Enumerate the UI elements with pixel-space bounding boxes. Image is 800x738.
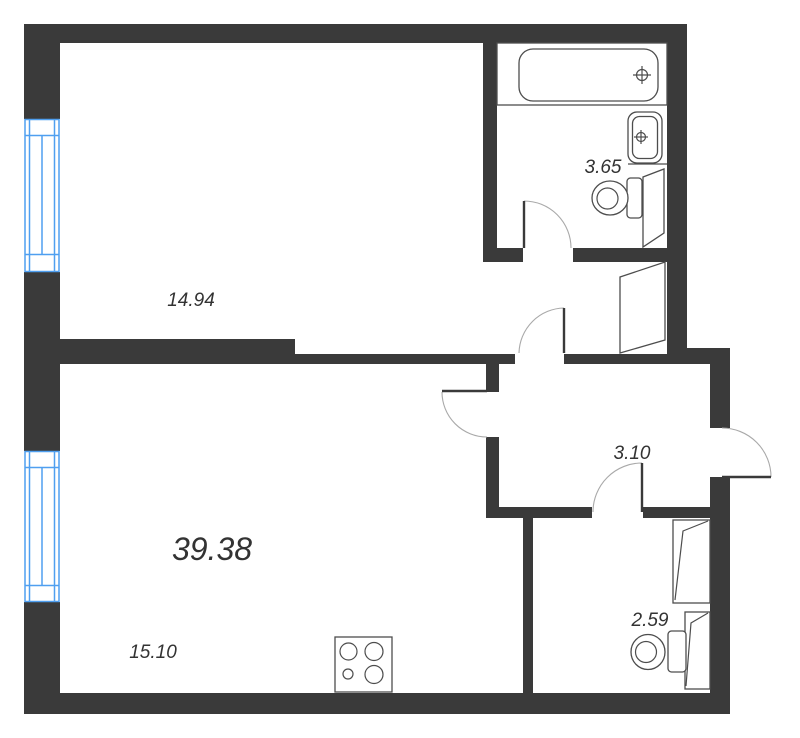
area-label-top-room: 14.94 <box>167 290 215 311</box>
door-living-room-icon <box>442 391 487 437</box>
area-label-total: 39.38 <box>172 531 252 567</box>
door-wc-icon <box>593 463 642 512</box>
door-top-room-icon <box>519 308 564 353</box>
entrance-door-icon <box>722 428 771 477</box>
wall-bottom <box>24 693 730 714</box>
wall-middle-thin-left <box>295 354 515 364</box>
toilet-bathroom-icon <box>592 178 642 218</box>
wall-right-step <box>667 348 730 364</box>
door-bathroom-icon <box>524 201 571 248</box>
door-panel-bathroom-icon <box>643 169 664 247</box>
floor-plan: 14.94 3.65 3.10 39.38 15.10 2.59 <box>0 0 800 738</box>
area-label-kitchen-living: 15.10 <box>129 642 177 663</box>
wall-hall-west-stub <box>486 364 499 392</box>
bathtub-icon <box>497 43 667 105</box>
area-label-bathroom: 3.65 <box>585 157 622 178</box>
area-label-wc: 2.59 <box>631 610 669 631</box>
wall-hall-south-right <box>643 507 710 518</box>
wall-right-below-entrance <box>710 477 730 693</box>
wall-right-upper <box>667 43 687 348</box>
door-panel-nook-icon <box>620 262 665 353</box>
wall-hall-west-lower <box>486 437 499 518</box>
sink-icon <box>628 112 667 164</box>
toilet-wc-icon <box>631 631 686 672</box>
area-label-hallway: 3.10 <box>614 443 651 464</box>
door-panel-wc-lower-icon <box>685 612 710 689</box>
walls <box>24 24 730 714</box>
wall-wc-west <box>523 507 533 693</box>
window-top-left-icon <box>25 120 59 272</box>
wall-bathroom-south-left <box>483 248 523 262</box>
wall-hall-south-left <box>486 507 592 518</box>
wall-left-middle <box>24 272 60 451</box>
window-bottom-left-icon <box>25 452 59 602</box>
wall-bathroom-west <box>483 43 497 262</box>
wall-right-above-entrance <box>710 364 730 428</box>
floor-plan-canvas: 14.94 3.65 3.10 39.38 15.10 2.59 <box>0 0 800 738</box>
wall-bathroom-south-right <box>573 248 667 262</box>
wall-top <box>24 24 687 43</box>
wall-middle-thick <box>60 339 295 364</box>
door-panel-wc-upper-icon <box>673 520 710 603</box>
wall-middle-thin-right <box>564 354 667 364</box>
stove-icon <box>335 637 392 692</box>
